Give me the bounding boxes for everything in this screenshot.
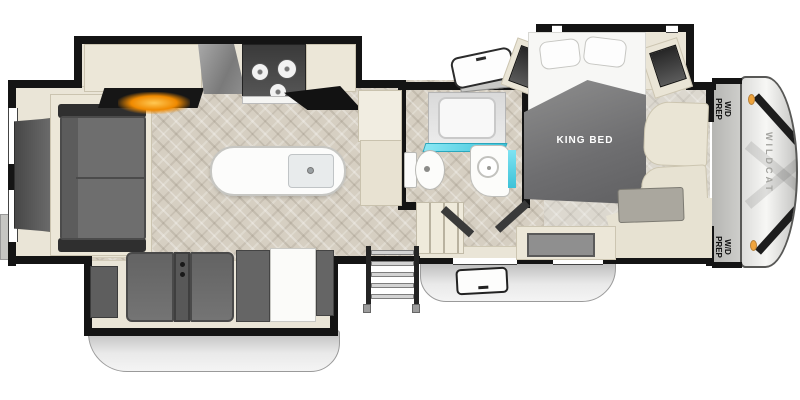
shower-inner xyxy=(438,97,496,139)
entry-step-3 xyxy=(371,272,414,277)
floorplan-canvas: W/D PREP W/D PREP WILDCAT xyxy=(0,0,800,400)
entertainment-center xyxy=(84,44,202,92)
wall-kitchen-slide-top xyxy=(74,36,362,44)
wardrobe-upper xyxy=(643,101,709,167)
entry-step-1 xyxy=(371,250,414,255)
entry-door-handle xyxy=(476,56,486,61)
dinette-table xyxy=(270,248,316,322)
sofa-armrest-bottom xyxy=(58,238,146,252)
entry-steps-rail-right xyxy=(414,246,419,306)
pillow-right xyxy=(582,36,627,69)
cupholder-1 xyxy=(180,262,185,267)
bedroom-cabinet xyxy=(617,187,684,223)
sofa-seam xyxy=(76,177,144,179)
right-skirt xyxy=(420,262,616,302)
bedroom-dresser xyxy=(516,226,616,260)
slide-cabinet xyxy=(90,266,118,318)
wall-rear-top xyxy=(8,80,78,88)
vanity-drain xyxy=(487,166,491,170)
vanity-sink xyxy=(477,156,499,178)
theater-console xyxy=(174,252,190,322)
pantry-upper xyxy=(358,90,402,142)
wall-front-band-top xyxy=(712,78,742,84)
fireplace-glow xyxy=(118,92,190,114)
theater-seat-left xyxy=(126,252,174,322)
burner-1 xyxy=(251,63,269,81)
entry-step-4 xyxy=(371,283,414,288)
entry-step-2 xyxy=(371,261,414,266)
dinette-bench-left xyxy=(236,250,270,322)
entry-steps-foot-left xyxy=(363,304,371,313)
bottom-window-1 xyxy=(453,257,517,265)
wall-bottom-left xyxy=(8,256,92,264)
king-bed-label: KING BED xyxy=(524,135,646,146)
entry-steps-foot-right xyxy=(412,304,420,313)
kitchen-island xyxy=(210,146,346,196)
interior-steps xyxy=(416,202,464,254)
kitchen-counter-right xyxy=(306,44,356,92)
burner-2 xyxy=(277,59,297,79)
marker-light-top xyxy=(748,94,755,105)
toilet-flush xyxy=(424,166,430,172)
wall-front-band-bottom xyxy=(712,262,742,268)
cupholder-2 xyxy=(180,272,185,277)
brand-label: WILDCAT xyxy=(764,132,774,232)
vanity-accent xyxy=(508,150,516,188)
sofa xyxy=(60,116,146,240)
front-cap: WILDCAT xyxy=(740,76,798,268)
bottom-slide-skirt xyxy=(88,330,340,372)
toilet-bowl xyxy=(415,150,445,190)
baggage-door-handle xyxy=(478,286,488,290)
baggage-door xyxy=(455,267,508,296)
dinette-bench-right xyxy=(316,250,334,316)
rear-tv xyxy=(14,118,54,232)
dresser-drawer xyxy=(527,233,595,257)
refrigerator xyxy=(360,140,402,206)
wall-bottom-slide-bottom xyxy=(84,328,338,336)
pillow-left xyxy=(538,38,581,71)
entry-step-5 xyxy=(371,294,414,299)
theater-seat-right xyxy=(190,252,234,322)
entry-steps xyxy=(363,244,423,316)
island-faucet xyxy=(307,167,314,174)
marker-light-bottom xyxy=(750,240,757,251)
bedslide-seal-right xyxy=(666,25,678,33)
